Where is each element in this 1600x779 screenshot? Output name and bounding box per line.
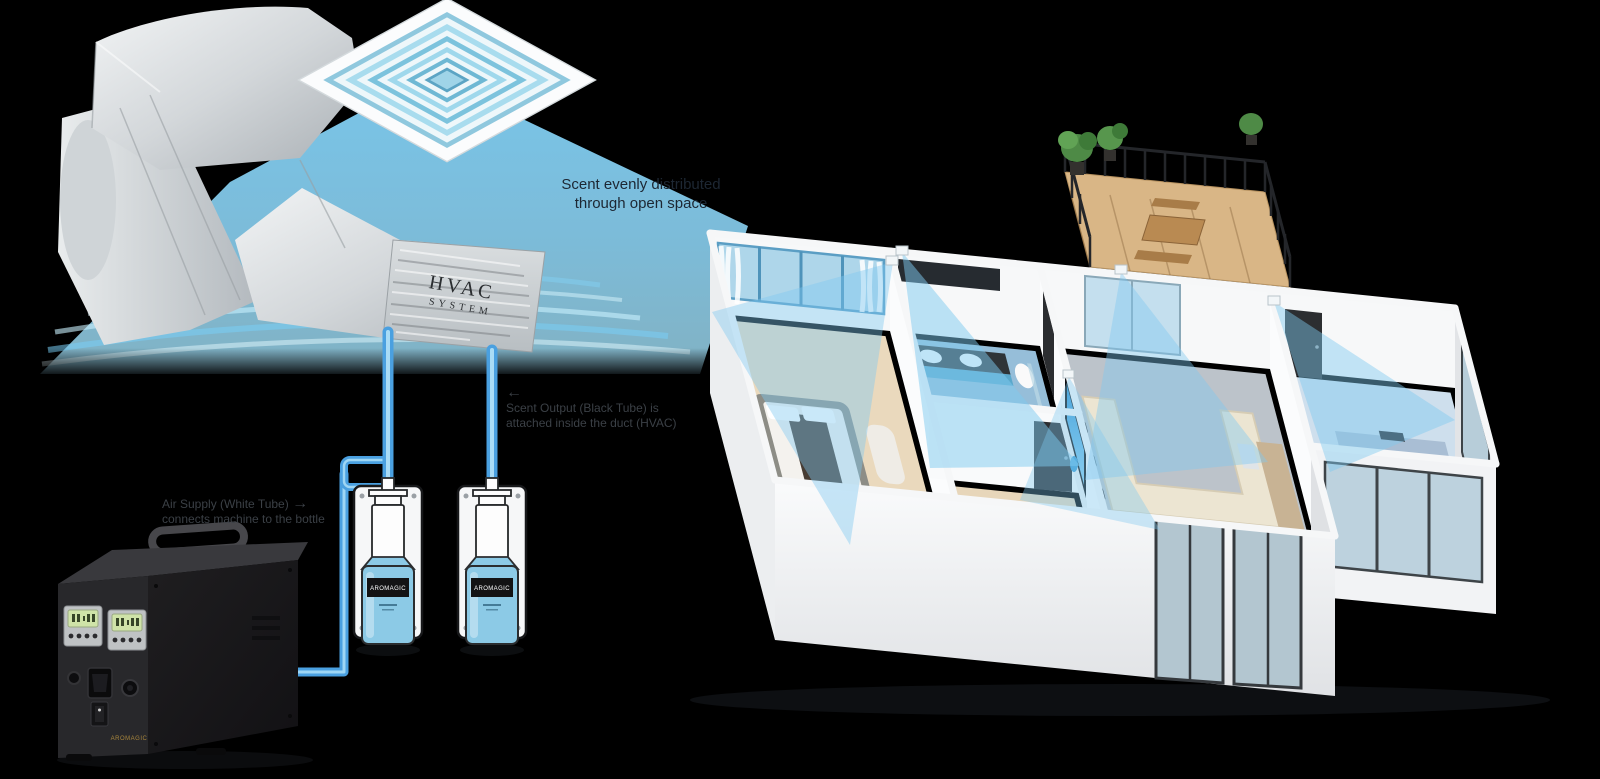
- vent-bathroom: [896, 246, 908, 255]
- hvac-illustration: HVAC SYSTEM: [20, 0, 760, 769]
- label-air-supply: Air Supply (White Tube) → connects machi…: [162, 497, 325, 527]
- machine-power-switch: [91, 702, 108, 726]
- vent-office: [1268, 296, 1280, 305]
- distribution-line2: through open space: [575, 195, 708, 212]
- side-vents: [252, 616, 280, 640]
- scent-system-diagram: HVAC SYSTEM: [0, 0, 1600, 779]
- vent-bedroom: [886, 256, 898, 265]
- office-front-wall: [1311, 446, 1496, 614]
- machine-timer-display-1: [64, 606, 102, 646]
- air-supply-line1: Air Supply (White Tube): [162, 497, 289, 511]
- balcony-plant-2: [1097, 123, 1128, 161]
- distribution-line1: Scent evenly distributed: [561, 176, 720, 193]
- machine-side-panel: [148, 560, 298, 754]
- diagram-canvas: HVAC SYSTEM: [0, 0, 1600, 779]
- scent-output-line1: Scent Output (Black Tube) is: [506, 401, 659, 415]
- apartment-cutaway: [690, 113, 1550, 716]
- machine-button: [68, 672, 80, 684]
- bottle-brand-text: AROMAGIC: [474, 586, 510, 592]
- right-arrow-icon: →: [292, 497, 308, 511]
- label-distribution: Scent evenly distributed through open sp…: [538, 175, 744, 213]
- house-shadow: [690, 684, 1550, 716]
- insulated-duct: HVAC SYSTEM: [383, 240, 545, 352]
- bottle-pump: [369, 478, 407, 558]
- label-scent-output: ← Scent Output (Black Tube) is attached …: [506, 386, 677, 431]
- diffuser-machine: AROMAGIC: [57, 525, 313, 769]
- bottle-body: AROMAGIC: [466, 557, 518, 644]
- machine-power-socket: [88, 668, 112, 698]
- vent-kitchen: [1115, 265, 1127, 274]
- machine-front-panel: [58, 576, 148, 758]
- air-supply-line2: connects machine to the bottle: [162, 512, 325, 526]
- machine-brand-text: AROMAGIC: [111, 736, 148, 742]
- duct-end-cap: [60, 120, 116, 280]
- vent-living: [1063, 370, 1074, 378]
- balcony-plant-3: [1239, 113, 1263, 145]
- left-arrow-icon: ←: [506, 386, 522, 400]
- machine-timer-display-2: [108, 610, 146, 650]
- scent-bottle-1: AROMAGIC: [354, 478, 422, 656]
- bottle-body: AROMAGIC: [362, 557, 414, 644]
- office-front-window: [1325, 462, 1482, 582]
- bottle-pump: [473, 478, 511, 558]
- scent-bottle-2: AROMAGIC: [458, 478, 526, 656]
- scent-output-line2: attached inside the duct (HVAC): [506, 416, 677, 430]
- bottle-brand-text: AROMAGIC: [370, 586, 406, 592]
